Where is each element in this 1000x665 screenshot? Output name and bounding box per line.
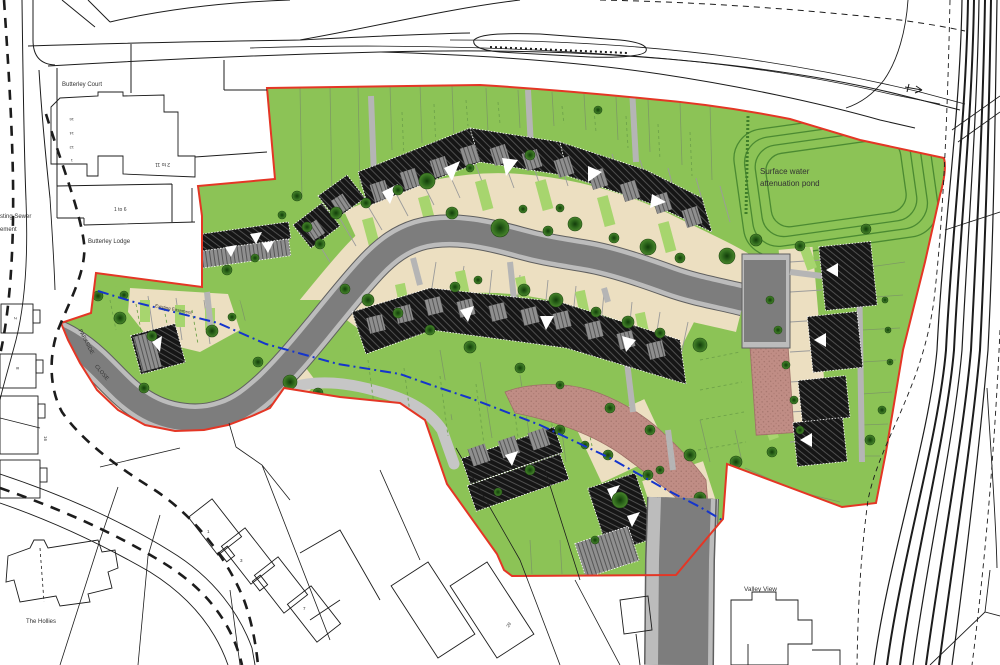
svg-text:Butterley Lodge: Butterley Lodge (88, 239, 131, 245)
svg-text:Surface water: Surface water (760, 167, 810, 176)
svg-text:14: 14 (69, 131, 74, 136)
svg-text:attenuation pond: attenuation pond (760, 179, 820, 188)
svg-text:Valley View: Valley View (744, 586, 777, 593)
svg-text:Butterley Court: Butterley Court (62, 82, 102, 88)
svg-text:1 to 6: 1 to 6 (114, 207, 127, 213)
svg-text:sting Sewer: sting Sewer (0, 214, 31, 220)
svg-text:The Hollies: The Hollies (26, 619, 56, 625)
svg-text:16: 16 (43, 436, 48, 442)
svg-text:2 to 11: 2 to 11 (155, 161, 170, 167)
svg-text:16: 16 (69, 117, 74, 122)
svg-text:ement: ement (0, 227, 17, 233)
svg-text:12: 12 (69, 145, 74, 150)
